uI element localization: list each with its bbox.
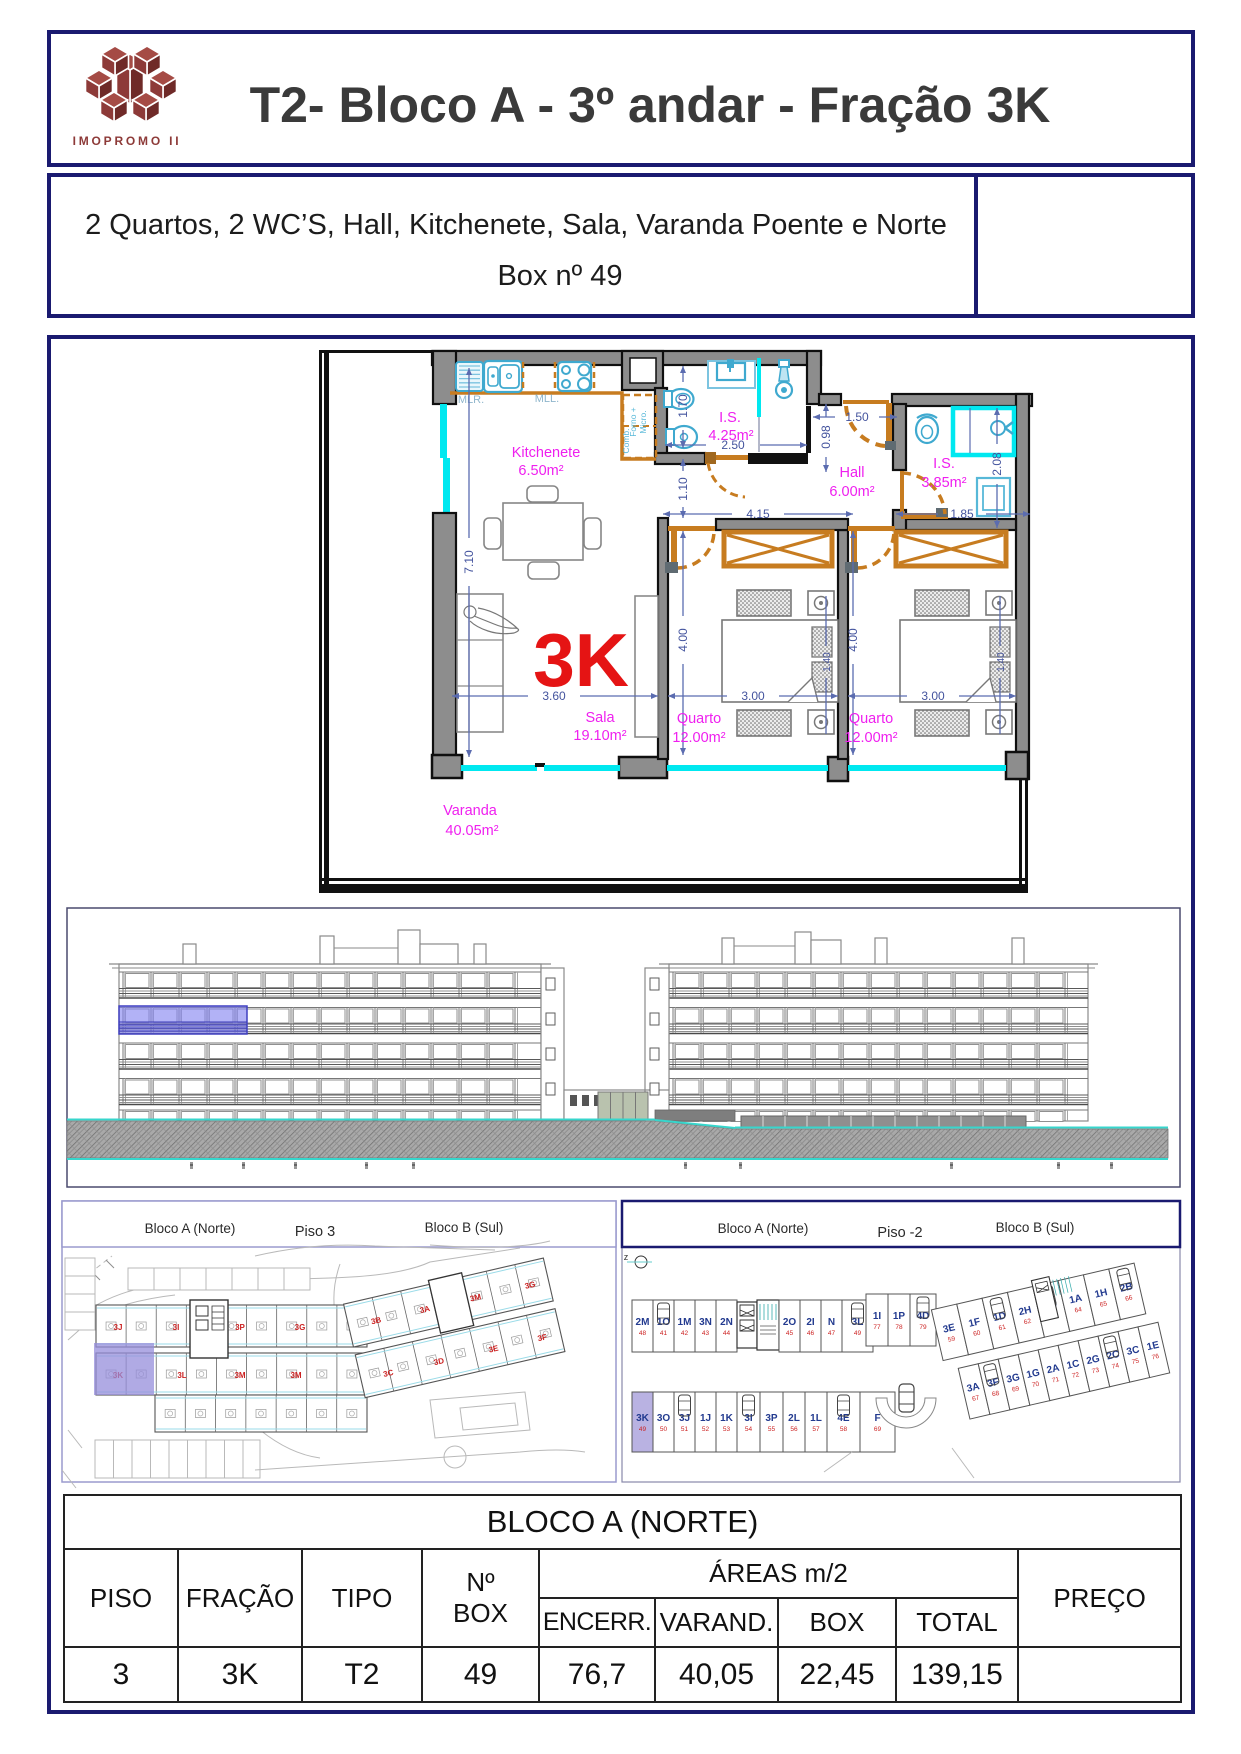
svg-text:0.98: 0.98	[819, 425, 833, 449]
svg-text:3K: 3K	[636, 1413, 650, 1424]
svg-text:3P: 3P	[765, 1413, 778, 1424]
svg-text:49: 49	[639, 1426, 647, 1433]
svg-text:Comb.: Comb.	[621, 428, 631, 453]
svg-text:12.00m²: 12.00m²	[672, 730, 725, 746]
svg-text:4D: 4D	[917, 1311, 930, 1322]
svg-text:2L: 2L	[788, 1413, 800, 1424]
svg-text:3N: 3N	[699, 1317, 712, 1328]
svg-text:1M: 1M	[678, 1317, 692, 1328]
svg-text:4.15: 4.15	[746, 507, 770, 521]
svg-text:1L: 1L	[810, 1413, 822, 1424]
svg-text:MLR.: MLR.	[458, 394, 484, 406]
svg-text:2I: 2I	[806, 1317, 815, 1328]
svg-text:3M: 3M	[290, 1371, 301, 1380]
svg-text:4E: 4E	[837, 1413, 850, 1424]
svg-text:N: N	[828, 1317, 835, 1328]
svg-text:2N: 2N	[720, 1317, 733, 1328]
svg-text:1.10: 1.10	[676, 477, 690, 501]
svg-text:51: 51	[681, 1426, 689, 1433]
svg-text:77: 77	[873, 1324, 881, 1331]
svg-text:3K: 3K	[533, 618, 629, 702]
svg-text:3J: 3J	[114, 1323, 123, 1332]
svg-text:43: 43	[702, 1330, 710, 1337]
svg-text:45: 45	[786, 1330, 794, 1337]
svg-text:3I: 3I	[173, 1323, 180, 1332]
svg-text:I.S.: I.S.	[933, 456, 955, 472]
svg-text:46: 46	[807, 1330, 815, 1337]
svg-text:Piso 3: Piso 3	[295, 1224, 335, 1240]
svg-text:Bloco B (Sul): Bloco B (Sul)	[425, 1220, 504, 1235]
svg-text:6.00m²: 6.00m²	[829, 484, 874, 500]
svg-text:42: 42	[681, 1330, 689, 1337]
svg-text:3G: 3G	[295, 1323, 306, 1332]
svg-text:1I: 1I	[873, 1311, 882, 1322]
svg-text:3O: 3O	[657, 1413, 671, 1424]
svg-text:1J: 1J	[700, 1413, 711, 1424]
svg-text:57: 57	[812, 1426, 820, 1433]
svg-text:MLL.: MLL.	[535, 393, 559, 405]
svg-text:4.00: 4.00	[676, 628, 690, 652]
svg-text:6.50m²: 6.50m²	[518, 463, 563, 479]
svg-text:1.85: 1.85	[950, 507, 974, 521]
svg-text:19.10m²: 19.10m²	[573, 728, 626, 744]
svg-text:44: 44	[723, 1330, 731, 1337]
svg-text:2.08: 2.08	[990, 452, 1004, 476]
svg-text:7.10: 7.10	[462, 550, 476, 574]
svg-text:47: 47	[828, 1330, 836, 1337]
svg-text:69: 69	[874, 1426, 882, 1433]
svg-text:Kitchenete: Kitchenete	[512, 445, 581, 461]
svg-text:3.00: 3.00	[741, 689, 765, 703]
svg-text:41: 41	[660, 1330, 668, 1337]
svg-text:3.85m²: 3.85m²	[921, 475, 966, 491]
svg-text:1K: 1K	[720, 1413, 734, 1424]
svg-text:53: 53	[723, 1426, 731, 1433]
svg-text:55: 55	[768, 1426, 776, 1433]
svg-text:2O: 2O	[783, 1317, 797, 1328]
svg-text:1P: 1P	[893, 1311, 906, 1322]
svg-text:Bloco A (Norte): Bloco A (Norte)	[718, 1221, 809, 1236]
svg-text:Quarto: Quarto	[849, 711, 893, 727]
svg-text:3P: 3P	[235, 1323, 245, 1332]
svg-text:12.00m²: 12.00m²	[844, 730, 897, 746]
svg-text:1.70: 1.70	[676, 394, 690, 418]
svg-text:3.00: 3.00	[921, 689, 945, 703]
svg-text:3L: 3L	[177, 1371, 186, 1380]
svg-text:I.S.: I.S.	[719, 410, 741, 426]
svg-text:40.05m²: 40.05m²	[445, 823, 498, 839]
svg-text:4.25m²: 4.25m²	[708, 428, 753, 444]
svg-text:Bloco B (Sul): Bloco B (Sul)	[996, 1220, 1075, 1235]
svg-text:50: 50	[660, 1426, 668, 1433]
svg-text:1O: 1O	[657, 1317, 671, 1328]
svg-text:F: F	[874, 1413, 880, 1424]
svg-text:3M: 3M	[234, 1371, 245, 1380]
svg-text:2M: 2M	[636, 1317, 650, 1328]
svg-text:3I: 3I	[744, 1413, 753, 1424]
svg-text:Varanda: Varanda	[443, 803, 498, 819]
svg-text:1.40: 1.40	[996, 652, 1007, 672]
svg-text:49: 49	[854, 1330, 862, 1337]
svg-text:Micro.: Micro.	[638, 410, 648, 433]
svg-text:z: z	[624, 1252, 629, 1262]
svg-text:4.00: 4.00	[846, 628, 860, 652]
svg-text:Sala: Sala	[585, 710, 615, 726]
svg-text:56: 56	[790, 1426, 798, 1433]
svg-text:48: 48	[639, 1330, 647, 1337]
svg-text:1.50: 1.50	[845, 410, 869, 424]
svg-text:3J: 3J	[679, 1413, 690, 1424]
svg-text:Quarto: Quarto	[677, 711, 721, 727]
svg-text:Bloco A (Norte): Bloco A (Norte)	[145, 1221, 236, 1236]
svg-text:54: 54	[745, 1426, 753, 1433]
svg-text:58: 58	[840, 1426, 848, 1433]
svg-text:52: 52	[702, 1426, 710, 1433]
svg-text:Hall: Hall	[840, 465, 865, 481]
svg-text:1.40: 1.40	[822, 652, 833, 672]
svg-text:79: 79	[919, 1324, 927, 1331]
svg-text:3L: 3L	[852, 1317, 864, 1328]
svg-text:78: 78	[895, 1324, 903, 1331]
svg-text:Piso -2: Piso -2	[877, 1225, 922, 1241]
